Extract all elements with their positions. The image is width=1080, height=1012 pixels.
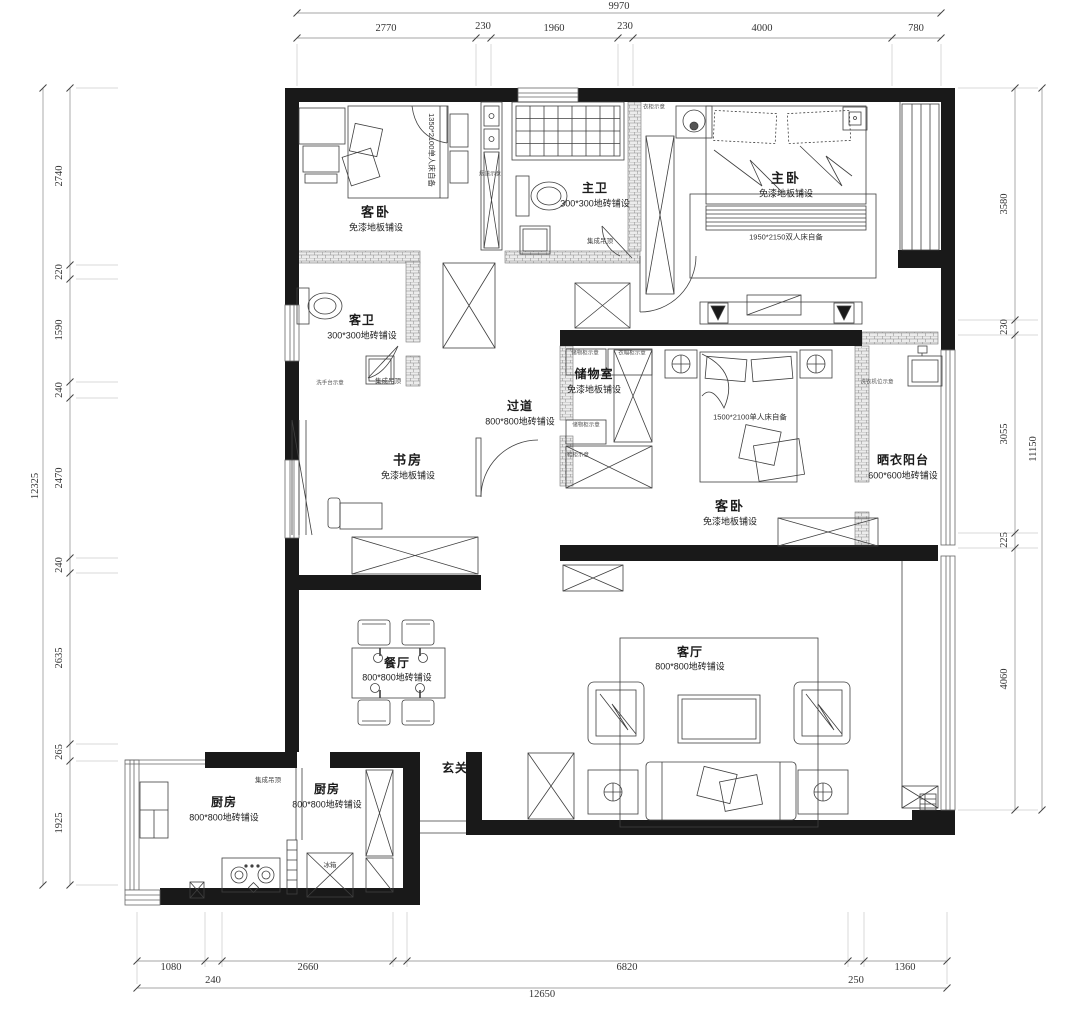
shower-grid-icon bbox=[512, 102, 624, 160]
room-spec-corridor: 800*800地砖铺设 bbox=[485, 418, 555, 427]
room-spec-guest-bedroom-2: 免漆地板铺设 bbox=[703, 518, 757, 527]
dim-bottom-total: 12650 bbox=[529, 990, 555, 1001]
room-name-dining: 餐厅 bbox=[384, 657, 410, 669]
dim-left-seg-7: 265 bbox=[55, 744, 66, 760]
room-spec-guest-bath: 300*300地砖铺设 bbox=[327, 332, 397, 341]
dim-right-seg-2: 3055 bbox=[1000, 424, 1011, 445]
room-name-kitchen-1: 厨房 bbox=[211, 796, 237, 808]
dim-bottom-seg-1: 240 bbox=[205, 976, 221, 987]
dim-left-seg-4: 2470 bbox=[55, 468, 66, 489]
room-spec-guest-bedroom-1: 免漆地板铺设 bbox=[349, 224, 403, 233]
dim-top-total: 9970 bbox=[609, 2, 630, 13]
dim-right-seg-4: 4060 bbox=[1000, 669, 1011, 690]
dim-top-seg-2: 1960 bbox=[544, 24, 565, 35]
bay-window-seat bbox=[902, 561, 938, 810]
room-name-guest-bedroom-2: 客卧 bbox=[715, 500, 745, 513]
room-spec-dining: 800*800地砖铺设 bbox=[362, 674, 432, 683]
room-spec-laundry-balcony: 600*600地砖铺设 bbox=[868, 472, 938, 481]
plan-drawing bbox=[0, 0, 1080, 1012]
vanity-icon bbox=[520, 226, 550, 254]
room-spec-study: 免漆地板铺设 bbox=[381, 472, 435, 481]
room-spec-storage: 免漆地板铺设 bbox=[567, 386, 621, 395]
room-spec-living: 800*800地砖铺设 bbox=[655, 663, 725, 672]
master-bed-spec: 1950*2150双人床自备 bbox=[749, 233, 823, 241]
coat-cabinet-note: 衣帽柜示意 bbox=[618, 351, 646, 357]
kitchen-cabinet-icon bbox=[366, 770, 393, 892]
room-name-master-bath: 主卫 bbox=[582, 182, 608, 194]
dim-right-seg-1: 230 bbox=[1000, 319, 1011, 335]
dim-bottom-seg-3: 6820 bbox=[617, 963, 638, 974]
toilet-icon bbox=[516, 176, 567, 216]
entry-threshold bbox=[420, 821, 466, 833]
bed-icon bbox=[640, 102, 939, 312]
room-name-master-bedroom: 主卧 bbox=[771, 172, 801, 185]
dim-right-seg-0: 3580 bbox=[1000, 194, 1011, 215]
stove-icon bbox=[222, 858, 280, 892]
room-name-guest-bath: 客卫 bbox=[349, 314, 375, 326]
window bbox=[125, 88, 955, 905]
wardrobe-icon bbox=[443, 263, 630, 819]
dim-top-seg-1: 230 bbox=[475, 22, 491, 33]
dim-left-seg-5: 240 bbox=[55, 557, 66, 573]
room-name-guest-bedroom-1: 客卧 bbox=[361, 206, 391, 219]
guest-bed-spec: 1500*2100单人床自备 bbox=[713, 413, 787, 421]
dim-top-seg-5: 780 bbox=[908, 24, 924, 35]
dim-bottom-seg-4: 250 bbox=[848, 976, 864, 987]
dim-left-seg-6: 2635 bbox=[55, 648, 66, 669]
room-spec-kitchen-2: 800*800地砖铺设 bbox=[292, 801, 362, 810]
ceiling-note-kitchen: 集成吊顶 bbox=[255, 778, 281, 785]
ceiling-note-master-bath: 集成吊顶 bbox=[587, 239, 613, 246]
vanity-note: 洗手台示意 bbox=[316, 381, 344, 387]
guest-bed-small-spec: 1350*2100单人床自备 bbox=[427, 113, 435, 187]
room-name-study: 书房 bbox=[393, 454, 423, 467]
dim-left-seg-8: 1925 bbox=[55, 813, 66, 834]
room-spec-master-bath: 300*300地砖铺设 bbox=[560, 200, 630, 209]
storage-cabinet-note-2: 储物柜示意 bbox=[572, 423, 600, 429]
dim-left-seg-2: 1590 bbox=[55, 320, 66, 341]
room-spec-master-bedroom: 免漆地板铺设 bbox=[759, 190, 813, 199]
dim-bottom-seg-2: 2660 bbox=[298, 963, 319, 974]
toilet-icon bbox=[297, 288, 342, 324]
room-name-corridor: 过道 bbox=[507, 400, 533, 412]
bed-icon bbox=[299, 106, 468, 198]
sink-cabinet-icon bbox=[140, 768, 302, 898]
dim-left-total: 12325 bbox=[31, 473, 42, 499]
fridge-label: 冰箱 bbox=[324, 863, 337, 870]
dim-top-seg-3: 230 bbox=[617, 22, 633, 33]
room-spec-kitchen-1: 800*800地砖铺设 bbox=[189, 814, 259, 823]
dim-bottom-seg-0: 1080 bbox=[161, 963, 182, 974]
dim-top-seg-4: 4000 bbox=[752, 24, 773, 35]
dim-left-seg-0: 2740 bbox=[55, 166, 66, 187]
room-name-storage: 储物室 bbox=[574, 368, 613, 380]
shaft-note: 烟道示意 bbox=[479, 172, 501, 178]
ceiling-note-guest-bath: 集成吊顶 bbox=[375, 379, 401, 386]
desk-icon bbox=[292, 420, 538, 574]
door-arc bbox=[368, 346, 398, 378]
tv-dresser-icon bbox=[700, 295, 862, 324]
dim-right-total: 11150 bbox=[1029, 436, 1040, 461]
washer-note: 洗衣机位示意 bbox=[860, 380, 893, 386]
dim-left-seg-3: 240 bbox=[55, 382, 66, 398]
floor-plan: 客卧 免漆地板铺设 主卫 300*300地砖铺设 主卧 免漆地板铺设 客卫 30… bbox=[0, 0, 1080, 1012]
dim-right-seg-3: 225 bbox=[1000, 532, 1011, 548]
room-name-kitchen-2: 厨房 bbox=[314, 783, 340, 795]
dim-left-seg-1: 220 bbox=[55, 264, 66, 280]
room-name-entrance: 玄关 bbox=[442, 762, 468, 774]
shoe-cabinet-note: 鞋柜示意 bbox=[567, 453, 589, 459]
dim-top-seg-0: 2770 bbox=[376, 24, 397, 35]
storage-cabinet-note-1: 储物柜示意 bbox=[571, 351, 599, 357]
wardrobe-note: 衣柜示意 bbox=[643, 105, 665, 111]
room-name-laundry-balcony: 晒衣阳台 bbox=[877, 454, 929, 466]
room-name-living: 客厅 bbox=[677, 646, 703, 658]
dimension-lines bbox=[40, 10, 1046, 992]
dim-bottom-seg-5: 1360 bbox=[895, 963, 916, 974]
washing-machine-icon bbox=[908, 346, 942, 386]
